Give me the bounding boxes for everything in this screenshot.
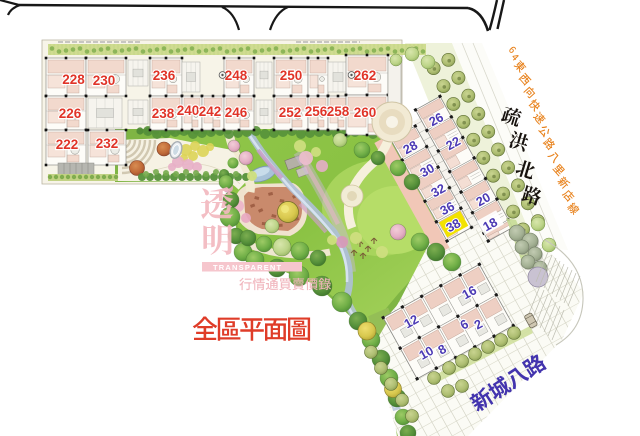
svg-text:250: 250 [280, 68, 303, 83]
svg-text:236: 236 [153, 68, 176, 83]
svg-text:262: 262 [354, 68, 377, 83]
svg-text:228: 228 [62, 72, 85, 87]
svg-text:246: 246 [225, 105, 248, 120]
svg-text:TRANSPARENT: TRANSPARENT [213, 263, 282, 272]
svg-text:256: 256 [305, 104, 328, 119]
svg-text:232: 232 [96, 136, 119, 151]
svg-text:242: 242 [199, 104, 222, 119]
svg-text:248: 248 [225, 68, 248, 83]
svg-text:226: 226 [59, 106, 82, 121]
svg-text:260: 260 [354, 105, 377, 120]
svg-text:258: 258 [327, 104, 350, 119]
svg-text:230: 230 [93, 73, 116, 88]
svg-text:240: 240 [177, 103, 200, 118]
svg-text:252: 252 [279, 105, 302, 120]
svg-text:238: 238 [152, 106, 175, 121]
svg-text:222: 222 [56, 137, 79, 152]
